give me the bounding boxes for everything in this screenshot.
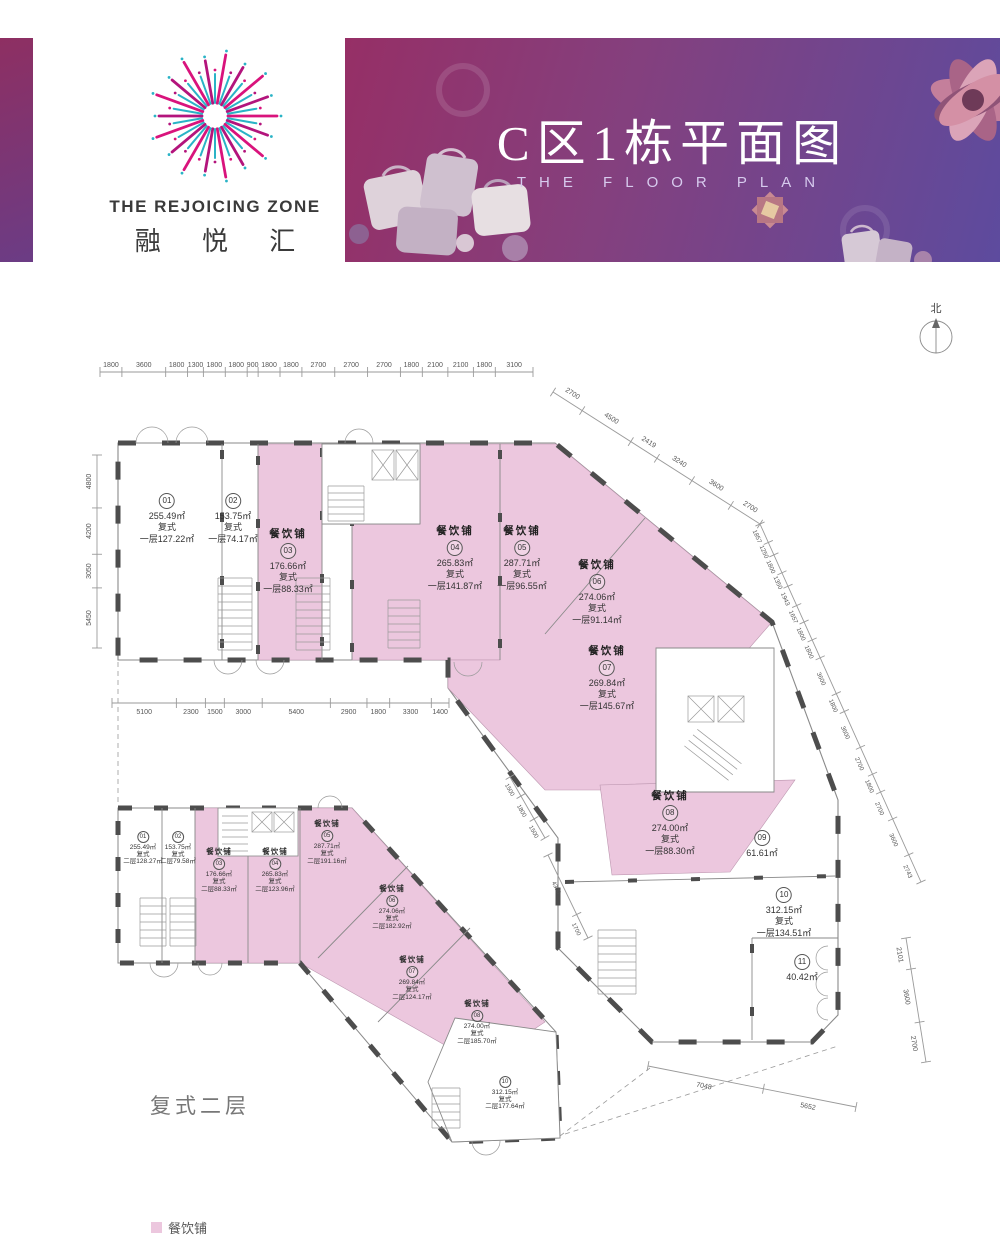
unit-type: 复式 <box>645 835 695 844</box>
unit-label-f2-04: 餐饮铺 04 265.83㎡ 复式 二层123.96㎡ <box>255 848 294 893</box>
unit-label-f2-07: 餐饮铺 07 269.84㎡ 复式 二层124.17㎡ <box>392 956 431 1001</box>
unit-area: 265.83㎡ <box>428 559 483 568</box>
unit-number: 07 <box>406 966 418 978</box>
svg-text:1800: 1800 <box>764 559 776 575</box>
door-arc <box>176 427 208 443</box>
svg-text:4200: 4200 <box>86 523 93 539</box>
svg-text:1800: 1800 <box>404 362 420 369</box>
svg-text:2101: 2101 <box>895 947 904 964</box>
unit-name: 餐饮铺 <box>263 529 313 540</box>
unit-floor-area: 一层88.33㎡ <box>263 585 313 594</box>
unit-floor-area: 一层91.14㎡ <box>572 616 622 625</box>
unit-area: 312.15㎡ <box>757 906 812 915</box>
stair-core <box>322 444 420 524</box>
unit-number: 01 <box>159 493 175 509</box>
unit-label-f2-03: 餐饮铺 03 176.66㎡ 复式 二层88.33㎡ <box>201 848 237 893</box>
svg-text:1400: 1400 <box>432 709 448 716</box>
unit-floor-area: 二层185.70㎡ <box>457 1038 496 1045</box>
unit-number: 11 <box>794 954 810 970</box>
unit-area: 269.84㎡ <box>580 679 635 688</box>
unit-name: 餐饮铺 <box>645 791 695 802</box>
svg-text:1500: 1500 <box>207 709 223 716</box>
svg-text:1300: 1300 <box>188 362 204 369</box>
unit-label-f2-06: 餐饮铺 06 274.06㎡ 复式 二层182.92㎡ <box>372 885 411 930</box>
unit-floor-area: 二层79.58㎡ <box>160 858 196 865</box>
unit-area: 255.49㎡ <box>140 512 195 521</box>
unit-number: 02 <box>172 831 184 843</box>
unit-area: 61.61㎡ <box>746 849 778 858</box>
unit-name: 餐饮铺 <box>497 526 547 537</box>
unit-type: 复式 <box>208 523 258 532</box>
unit-label-f1-07: 餐饮铺 07 269.84㎡ 复式 一层145.67㎡ <box>580 644 635 711</box>
elevator-core <box>656 648 774 792</box>
unit-area: 287.71㎡ <box>497 559 547 568</box>
unit-name: 餐饮铺 <box>201 848 237 856</box>
unit-area: 274.06㎡ <box>572 593 622 602</box>
svg-text:4800: 4800 <box>86 474 93 490</box>
unit-label-f2-02: 02 153.75㎡ 复式 二层79.58㎡ <box>160 830 196 865</box>
svg-text:3050: 3050 <box>86 563 93 579</box>
svg-text:1943: 1943 <box>779 592 791 608</box>
svg-text:1800: 1800 <box>795 627 807 643</box>
unit-type: 复式 <box>580 690 635 699</box>
svg-text:1800: 1800 <box>803 644 815 660</box>
unit-name: 餐饮铺 <box>428 526 483 537</box>
page: THE REJOICING ZONE 融 悦 汇 <box>0 0 1000 1242</box>
unit-number: 10 <box>499 1076 511 1088</box>
svg-text:2700: 2700 <box>564 387 581 401</box>
unit-type: 复式 <box>263 573 313 582</box>
svg-text:2700: 2700 <box>853 756 865 772</box>
unit-number: 10 <box>776 887 792 903</box>
unit-number: 06 <box>386 895 398 907</box>
unit-number: 01 <box>137 831 149 843</box>
unit-type: 复式 <box>457 1030 496 1037</box>
svg-text:3240: 3240 <box>671 455 688 469</box>
svg-text:3600: 3600 <box>708 479 725 493</box>
unit-number: 03 <box>280 543 296 559</box>
unit-name: 餐饮铺 <box>372 885 411 893</box>
unit-number: 04 <box>447 540 463 556</box>
svg-text:5400: 5400 <box>288 709 304 716</box>
unit-area: 176.66㎡ <box>263 562 313 571</box>
unit-type: 复式 <box>572 604 622 613</box>
legend: 餐饮铺 <box>151 1218 207 1237</box>
svg-text:1800: 1800 <box>261 362 277 369</box>
unit-floor-area: 一层141.87㎡ <box>428 582 483 591</box>
unit-name: 餐饮铺 <box>580 646 635 657</box>
svg-text:1500: 1500 <box>503 783 515 798</box>
unit-type: 复式 <box>140 523 195 532</box>
unit-label-f1-02: 02 153.75㎡ 复式 一层74.17㎡ <box>208 492 258 544</box>
unit-floor-area: 二层88.33㎡ <box>201 886 237 893</box>
svg-text:1800: 1800 <box>103 362 119 369</box>
unit-floor-area: 一层134.51㎡ <box>757 929 812 938</box>
unit-label-f1-03: 餐饮铺 03 176.66㎡ 复式 一层88.33㎡ <box>263 527 313 594</box>
north-compass: 北 <box>920 302 952 353</box>
unit-number: 09 <box>754 830 770 846</box>
svg-text:1350: 1350 <box>772 575 784 591</box>
svg-text:2900: 2900 <box>341 709 357 716</box>
svg-text:2100: 2100 <box>453 362 469 369</box>
svg-text:3600: 3600 <box>815 671 827 687</box>
unit-label-f2-01: 01 255.49㎡ 复式 二层128.27㎡ <box>123 830 162 865</box>
unit-name: 餐饮铺 <box>307 820 346 828</box>
unit-name: 餐饮铺 <box>457 1000 496 1008</box>
svg-text:2700: 2700 <box>311 362 327 369</box>
svg-text:1800: 1800 <box>207 362 223 369</box>
unit-label-f1-08: 餐饮铺 08 274.00㎡ 复式 一层88.30㎡ <box>645 789 695 856</box>
svg-text:3600: 3600 <box>901 989 910 1006</box>
dim-chain-bottom: 70485652 <box>647 1061 857 1112</box>
svg-text:1800: 1800 <box>228 362 244 369</box>
unit-number: 02 <box>225 493 241 509</box>
svg-text:5652: 5652 <box>800 1102 817 1112</box>
unit-name: 餐饮铺 <box>255 848 294 856</box>
unit-floor-area: 二层182.92㎡ <box>372 923 411 930</box>
unit-label-f1-04: 餐饮铺 04 265.83㎡ 复式 一层141.87㎡ <box>428 524 483 591</box>
unit-number: 04 <box>269 858 281 870</box>
svg-text:1800: 1800 <box>477 362 493 369</box>
unit-floor-area: 一层145.67㎡ <box>580 702 635 711</box>
svg-text:1857: 1857 <box>751 529 763 545</box>
svg-text:7048: 7048 <box>696 1082 713 1092</box>
unit-type: 复式 <box>392 986 431 993</box>
svg-text:4500: 4500 <box>603 412 620 426</box>
legend-label: 餐饮铺 <box>168 1218 207 1237</box>
svg-text:1250: 1250 <box>758 544 770 560</box>
unit-number: 06 <box>589 574 605 590</box>
unit-label-f1-05: 餐饮铺 05 287.71㎡ 复式 一层96.55㎡ <box>497 524 547 591</box>
svg-text:2700: 2700 <box>376 362 392 369</box>
unit-number: 05 <box>514 540 530 556</box>
unit-number: 03 <box>213 858 225 870</box>
svg-text:1800: 1800 <box>515 804 527 819</box>
unit-label-f2-08: 餐饮铺 08 274.00㎡ 复式 二层185.70㎡ <box>457 1000 496 1045</box>
unit-type: 复式 <box>428 570 483 579</box>
unit-label-f1-09: 09 61.61㎡ <box>746 829 778 858</box>
unit-floor-area: 二层191.16㎡ <box>307 858 346 865</box>
svg-text:900: 900 <box>247 362 259 369</box>
unit-type: 复式 <box>372 915 411 922</box>
svg-text:3100: 3100 <box>506 362 522 369</box>
unit-label-f1-06: 餐饮铺 06 274.06㎡ 复式 一层91.14㎡ <box>572 558 622 625</box>
svg-text:2743: 2743 <box>901 864 913 880</box>
svg-text:2700: 2700 <box>343 362 359 369</box>
svg-text:3000: 3000 <box>235 709 251 716</box>
svg-text:3300: 3300 <box>403 709 419 716</box>
svg-text:2700: 2700 <box>742 500 759 514</box>
unit-floor-area: 一层88.30㎡ <box>645 847 695 856</box>
dim-chain-mid: 510023001500300054002900180033001400 <box>112 698 449 716</box>
unit-floor-area: 二层124.17㎡ <box>392 994 431 1001</box>
unit-type: 复式 <box>201 878 237 885</box>
unit-number: 08 <box>662 805 678 821</box>
svg-text:1800: 1800 <box>371 709 387 716</box>
dim-chain-right: 210136002700 <box>895 937 931 1063</box>
svg-text:2700: 2700 <box>909 1035 918 1052</box>
unit-floor-area: 二层177.64㎡ <box>485 1103 524 1110</box>
unit-floor-area: 二层123.96㎡ <box>255 886 294 893</box>
svg-text:1800: 1800 <box>863 779 875 795</box>
svg-text:5450: 5450 <box>86 610 93 626</box>
unit-label-f2-05: 餐饮铺 05 287.71㎡ 复式 二层191.16㎡ <box>307 820 346 865</box>
svg-text:2700: 2700 <box>873 801 885 817</box>
unit-floor-area: 一层127.22㎡ <box>140 535 195 544</box>
unit-area: 153.75㎡ <box>208 512 258 521</box>
dining-swatch-icon <box>151 1222 162 1233</box>
svg-text:3600: 3600 <box>839 725 851 741</box>
unit-number: 07 <box>599 660 615 676</box>
unit-name: 餐饮铺 <box>572 560 622 571</box>
unit-area: 40.42㎡ <box>786 973 818 982</box>
svg-text:1800: 1800 <box>827 698 839 714</box>
svg-text:5100: 5100 <box>136 709 152 716</box>
unit-label-f2-10: 10 312.15㎡ 复式 二层177.64㎡ <box>485 1075 524 1110</box>
north-label: 北 <box>931 302 942 315</box>
unit-label-f1-01: 01 255.49㎡ 复式 一层127.22㎡ <box>140 492 195 544</box>
dim-chain-left: 5450305042004800 <box>86 455 102 648</box>
unit-floor-area: 二层128.27㎡ <box>123 858 162 865</box>
svg-text:2100: 2100 <box>427 362 443 369</box>
unit-label-f1-11: 11 40.42㎡ <box>786 953 818 982</box>
svg-text:3600: 3600 <box>887 832 899 848</box>
svg-text:1800: 1800 <box>283 362 299 369</box>
unit-floor-area: 一层74.17㎡ <box>208 535 258 544</box>
unit-name: 餐饮铺 <box>392 956 431 964</box>
unit-label-f1-10: 10 312.15㎡ 复式 一层134.51㎡ <box>757 886 812 938</box>
svg-text:3600: 3600 <box>136 362 152 369</box>
dim-chain-top: 1800360018001300180018009001800180027002… <box>100 362 533 377</box>
unit-type: 复式 <box>307 850 346 857</box>
svg-text:1800: 1800 <box>169 362 185 369</box>
unit-type: 复式 <box>497 570 547 579</box>
unit-type: 复式 <box>255 878 294 885</box>
unit-number: 08 <box>471 1010 483 1022</box>
svg-text:1657: 1657 <box>787 609 799 625</box>
svg-text:2300: 2300 <box>183 709 199 716</box>
section-label: 复式二层 <box>150 1090 250 1120</box>
svg-text:2419: 2419 <box>640 436 657 450</box>
floor-plan-drawing: 北 <box>0 0 1000 1242</box>
unit-number: 05 <box>321 830 333 842</box>
svg-text:1500: 1500 <box>527 825 539 840</box>
unit-type: 复式 <box>757 917 812 926</box>
unit-floor-area: 一层96.55㎡ <box>497 582 547 591</box>
unit-area: 274.00㎡ <box>645 824 695 833</box>
